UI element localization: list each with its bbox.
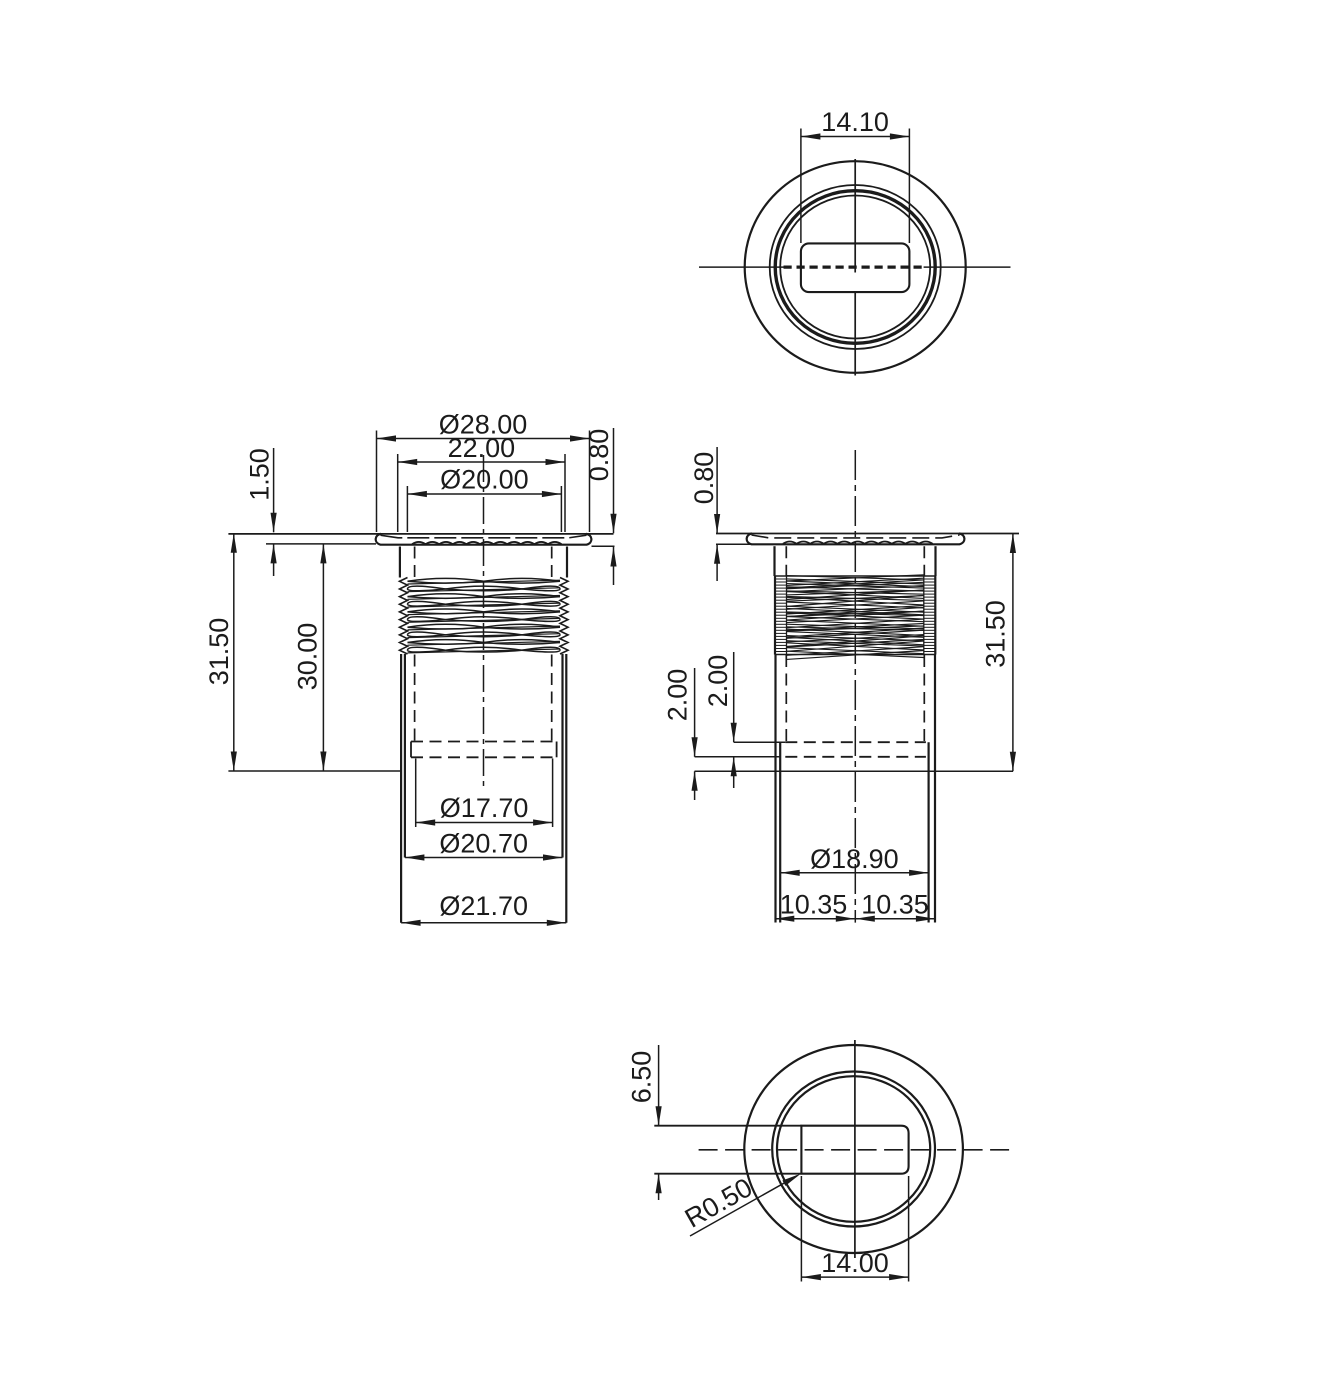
svg-text:22.00: 22.00 xyxy=(448,433,516,463)
svg-text:Ø20.70: Ø20.70 xyxy=(439,829,528,859)
svg-text:10.35: 10.35 xyxy=(861,890,929,920)
svg-text:Ø20.00: Ø20.00 xyxy=(440,465,529,495)
svg-text:2.00: 2.00 xyxy=(663,669,693,722)
svg-text:10.35: 10.35 xyxy=(780,890,848,920)
svg-text:0.80: 0.80 xyxy=(584,429,614,482)
svg-text:14.00: 14.00 xyxy=(821,1248,889,1278)
svg-text:0.80: 0.80 xyxy=(689,452,719,505)
svg-text:14.10: 14.10 xyxy=(821,107,889,137)
svg-text:2.00: 2.00 xyxy=(703,655,733,708)
svg-text:31.50: 31.50 xyxy=(204,618,234,686)
svg-text:1.50: 1.50 xyxy=(245,448,275,501)
svg-text:Ø18.90: Ø18.90 xyxy=(810,844,899,874)
svg-text:6.50: 6.50 xyxy=(626,1051,656,1104)
svg-text:30.00: 30.00 xyxy=(293,623,323,691)
svg-text:Ø17.70: Ø17.70 xyxy=(440,793,529,823)
svg-text:31.50: 31.50 xyxy=(981,600,1011,668)
svg-text:Ø21.70: Ø21.70 xyxy=(439,891,528,921)
